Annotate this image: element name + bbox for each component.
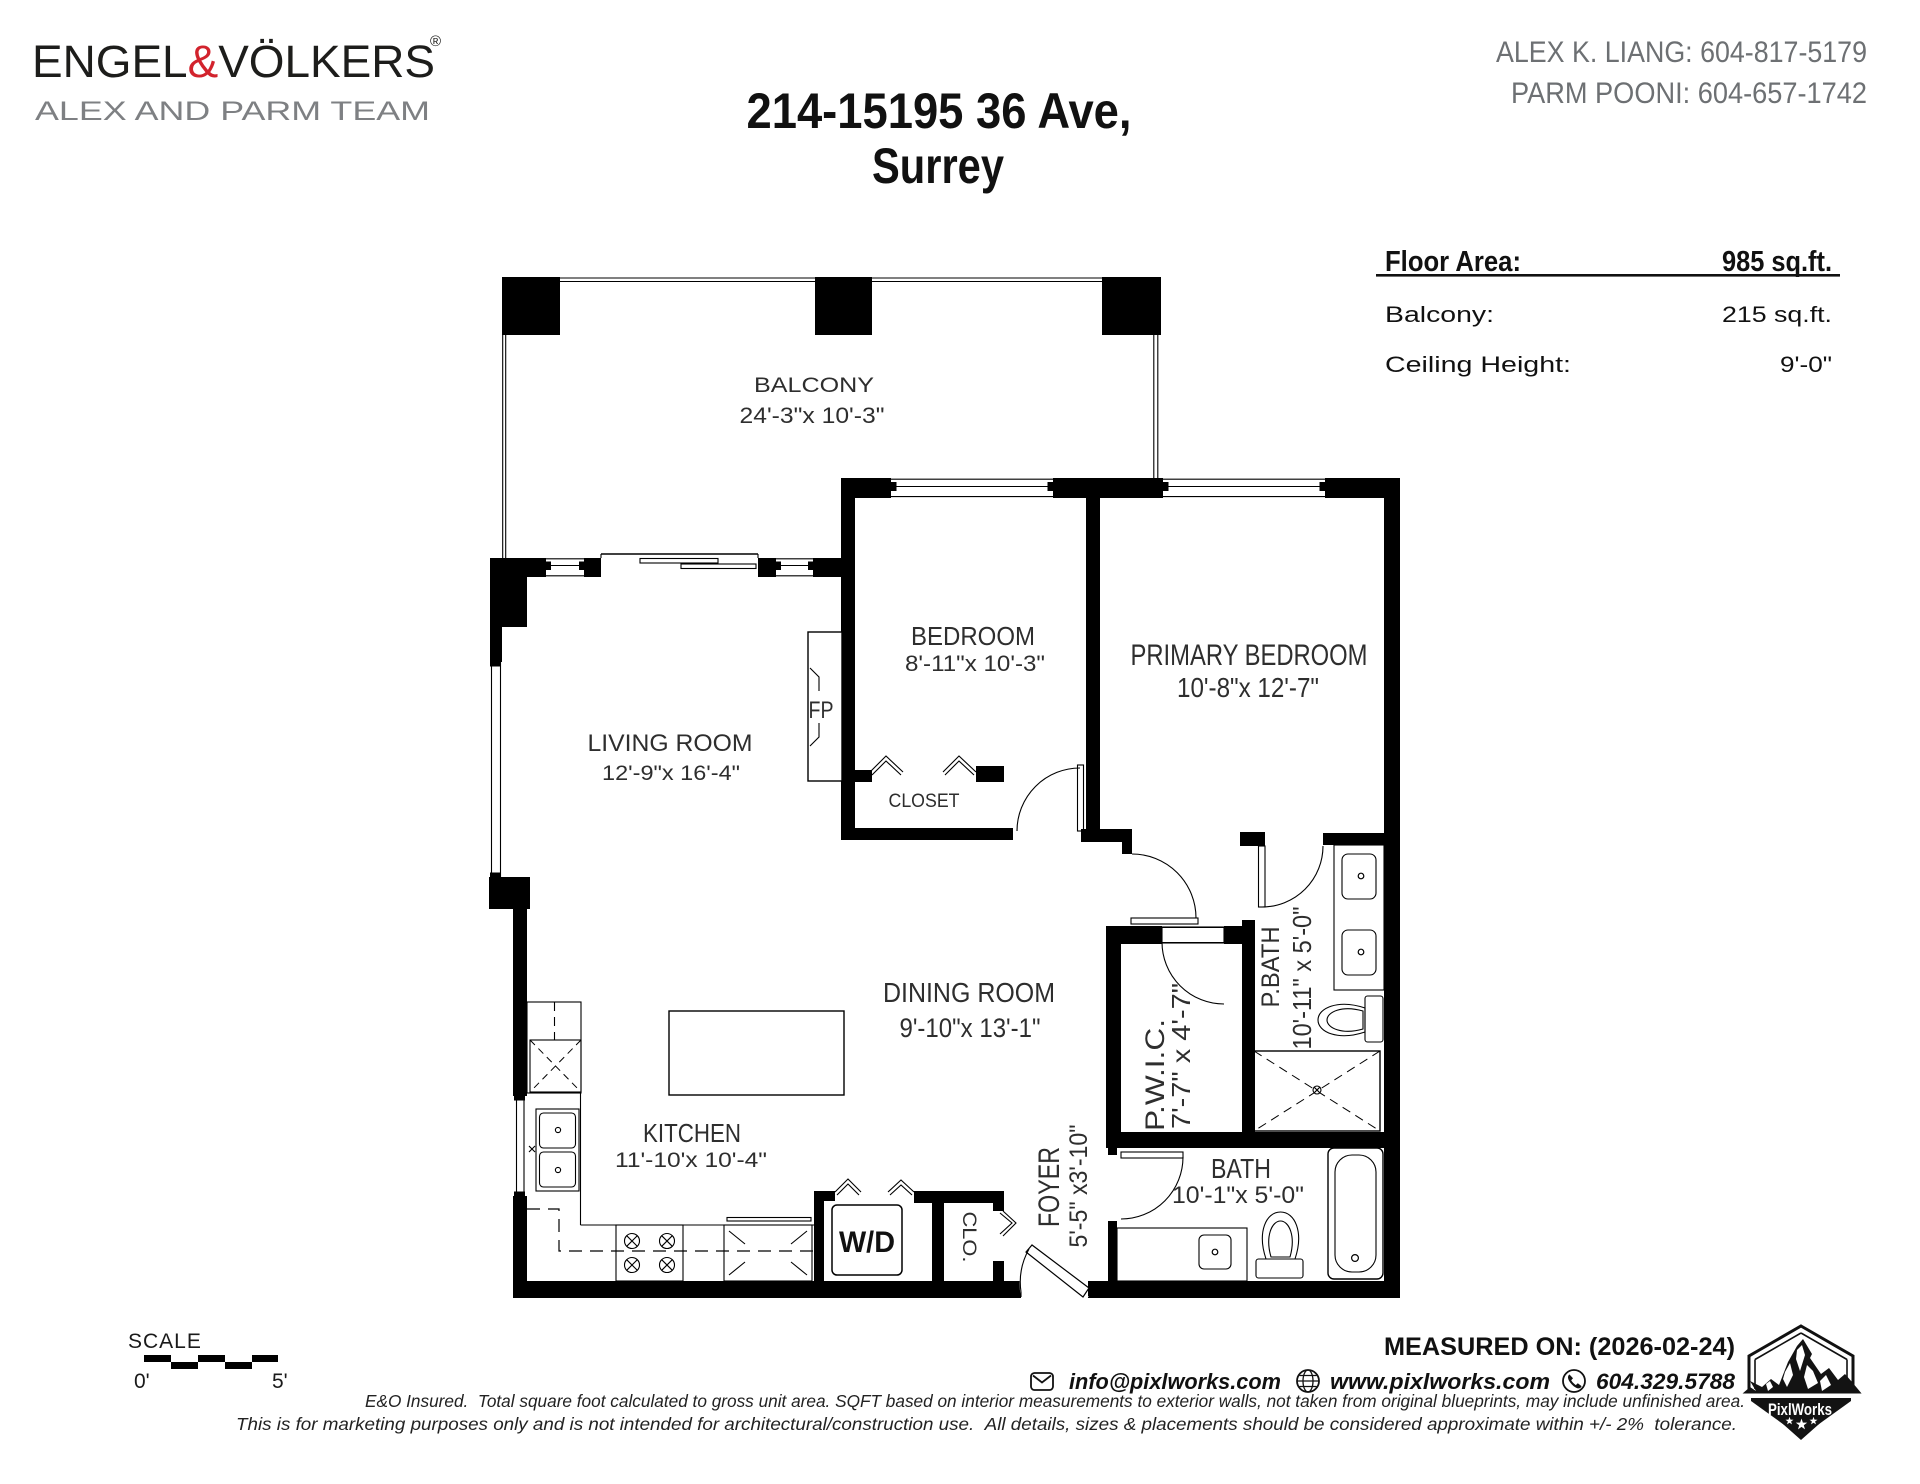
svg-text:P.BATH: P.BATH xyxy=(1257,927,1285,1008)
svg-text:This is for marketing purposes: This is for marketing purposes only and … xyxy=(236,1414,1737,1434)
svg-text:214-15195 36 Ave,: 214-15195 36 Ave, xyxy=(747,83,1132,139)
svg-text:PARM POONI: 604-657-1742: PARM POONI: 604-657-1742 xyxy=(1511,77,1867,110)
svg-text:9'-0": 9'-0" xyxy=(1780,352,1832,377)
svg-text:DINING ROOM: DINING ROOM xyxy=(883,977,1055,1008)
svg-text:11'-10'x 10'-4": 11'-10'x 10'-4" xyxy=(615,1149,767,1172)
svg-text:215 sq.ft.: 215 sq.ft. xyxy=(1722,302,1832,327)
svg-text:5'-5" x3'-10": 5'-5" x3'-10" xyxy=(1065,1125,1093,1248)
svg-text:ALEX K. LIANG: 604-817-5179: ALEX K. LIANG: 604-817-5179 xyxy=(1496,36,1867,69)
svg-text:KITCHEN: KITCHEN xyxy=(643,1118,741,1148)
svg-text:BEDROOM: BEDROOM xyxy=(911,621,1035,651)
svg-text:BALCONY: BALCONY xyxy=(754,374,874,397)
svg-text:985 sq.ft.: 985 sq.ft. xyxy=(1722,246,1832,278)
svg-text:ALEX AND PARM TEAM: ALEX AND PARM TEAM xyxy=(35,96,430,126)
svg-text:MEASURED ON: (2026-02-24): MEASURED ON: (2026-02-24) xyxy=(1384,1333,1735,1361)
svg-text:8'-11"x 10'-3": 8'-11"x 10'-3" xyxy=(905,651,1045,676)
svg-text:CLO.: CLO. xyxy=(958,1212,979,1263)
svg-text:24'-3"x 10'-3": 24'-3"x 10'-3" xyxy=(740,403,885,428)
svg-text:0': 0' xyxy=(134,1370,150,1393)
svg-text:BATH: BATH xyxy=(1211,1153,1271,1184)
svg-text:9'-10"x 13'-1": 9'-10"x 13'-1" xyxy=(900,1013,1041,1043)
svg-text:Balcony:: Balcony: xyxy=(1385,302,1494,327)
svg-text:Ceiling Height:: Ceiling Height: xyxy=(1385,352,1571,377)
svg-text:5': 5' xyxy=(272,1370,288,1393)
svg-text:LIVING ROOM: LIVING ROOM xyxy=(588,730,753,757)
svg-text:604.329.5788: 604.329.5788 xyxy=(1596,1369,1735,1394)
svg-text:10'-8"x 12'-7": 10'-8"x 12'-7" xyxy=(1177,672,1319,703)
svg-text:10'-11" x 5'-0": 10'-11" x 5'-0" xyxy=(1287,907,1317,1050)
svg-text:10'-1"x 5'-0": 10'-1"x 5'-0" xyxy=(1172,1182,1304,1209)
svg-text:®: ® xyxy=(430,33,441,50)
svg-text:www.pixlworks.com: www.pixlworks.com xyxy=(1330,1369,1550,1394)
svg-text:SCALE: SCALE xyxy=(128,1330,202,1353)
svg-text:PixlWorks: PixlWorks xyxy=(1768,1401,1832,1419)
svg-text:12'-9"x 16'-4": 12'-9"x 16'-4" xyxy=(602,762,740,785)
svg-text:W/D: W/D xyxy=(839,1226,895,1259)
svg-text:Floor Area:: Floor Area: xyxy=(1385,246,1521,278)
svg-text:FP: FP xyxy=(809,697,834,724)
svg-text:info@pixlworks.com: info@pixlworks.com xyxy=(1069,1369,1281,1394)
svg-text:FOYER: FOYER xyxy=(1033,1147,1066,1227)
svg-text:PRIMARY BEDROOM: PRIMARY BEDROOM xyxy=(1131,639,1368,672)
svg-text:Surrey: Surrey xyxy=(872,138,1004,194)
svg-text:E&O Insured. Total square foo: E&O Insured. Total square foot calculate… xyxy=(365,1391,1745,1411)
svg-text:7'-7" x 4'-7": 7'-7" x 4'-7" xyxy=(1166,983,1196,1129)
svg-text:CLOSET: CLOSET xyxy=(889,791,960,812)
svg-text:ENGEL&VÖLKERS: ENGEL&VÖLKERS xyxy=(32,36,435,87)
